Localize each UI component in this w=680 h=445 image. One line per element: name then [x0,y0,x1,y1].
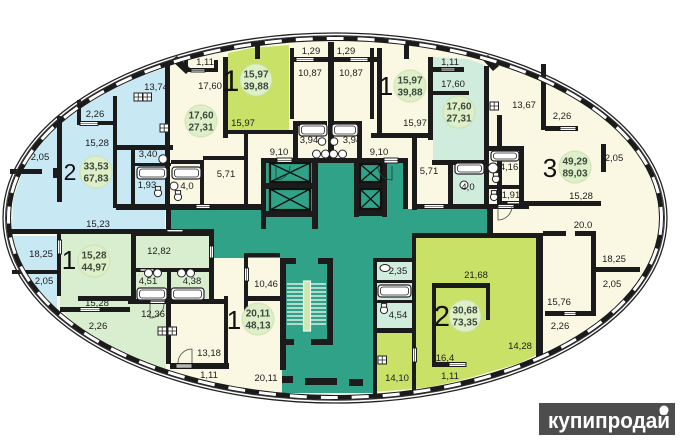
svg-text:20.0: 20.0 [574,220,593,231]
svg-text:2,26: 2,26 [551,321,570,332]
svg-text:9,10: 9,10 [370,147,389,158]
svg-text:39,88: 39,88 [397,88,422,99]
svg-text:15,28: 15,28 [85,138,109,149]
svg-text:17,60: 17,60 [441,79,465,90]
svg-text:1,11: 1,11 [441,371,459,382]
svg-text:15,28: 15,28 [569,191,593,202]
svg-text:21,68: 21,68 [464,270,488,281]
svg-text:15,23: 15,23 [86,219,110,230]
svg-text:13,18: 13,18 [197,348,221,359]
svg-text:33,53: 33,53 [83,162,108,173]
svg-text:14,28: 14,28 [508,341,532,352]
svg-text:14,10: 14,10 [385,373,409,384]
svg-text:17,60: 17,60 [446,102,471,113]
svg-text:17,60: 17,60 [188,111,213,122]
svg-text:1,11: 1,11 [196,57,214,68]
svg-text:4,0: 4,0 [180,181,193,192]
svg-text:20,11: 20,11 [254,373,277,384]
svg-text:3,94: 3,94 [300,135,319,146]
svg-text:44,97: 44,97 [81,263,106,274]
svg-text:18,25: 18,25 [602,254,626,265]
svg-text:1,91: 1,91 [502,190,521,201]
svg-text:2,26: 2,26 [89,321,108,332]
svg-text:12,82: 12,82 [147,246,171,257]
svg-text:2,26: 2,26 [553,111,572,122]
svg-text:13,74: 13,74 [144,82,168,93]
svg-text:89,03: 89,03 [562,169,587,180]
svg-text:1,29: 1,29 [337,46,356,57]
svg-text:2,05: 2,05 [603,279,622,290]
svg-text:1,29: 1,29 [302,46,321,57]
svg-text:купипродай: купипродай [548,408,670,433]
svg-text:1,11: 1,11 [200,370,218,381]
svg-text:3,94: 3,94 [343,135,362,146]
svg-text:4,38: 4,38 [183,276,202,287]
svg-text:15,28: 15,28 [81,251,106,262]
svg-text:27,31: 27,31 [188,123,213,134]
svg-text:15,97: 15,97 [243,70,268,81]
svg-text:67,83: 67,83 [83,174,108,185]
svg-text:4,16: 4,16 [500,162,519,173]
svg-text:10,46: 10,46 [254,279,278,290]
svg-text:15,97: 15,97 [397,76,422,87]
svg-text:1: 1 [227,305,241,335]
svg-text:15,97: 15,97 [231,118,255,129]
svg-text:49,29: 49,29 [562,157,587,168]
svg-text:1,93: 1,93 [138,180,157,191]
svg-text:2,35: 2,35 [389,266,408,277]
svg-text:9,10: 9,10 [270,147,289,158]
svg-text:13,67: 13,67 [512,100,536,111]
svg-text:17,60: 17,60 [198,81,222,92]
svg-text:2,05: 2,05 [605,153,624,164]
svg-text:30,68: 30,68 [452,306,477,317]
svg-text:39,88: 39,88 [243,82,268,93]
svg-text:10,87: 10,87 [298,68,322,79]
svg-text:1: 1 [379,71,393,101]
svg-text:4,54: 4,54 [389,310,408,321]
svg-text:18,25: 18,25 [29,249,53,260]
svg-text:4,0: 4,0 [461,182,474,193]
svg-text:15,76: 15,76 [547,297,571,308]
svg-text:73,35: 73,35 [452,318,477,329]
svg-text:2: 2 [64,159,77,185]
svg-text:27,31: 27,31 [446,114,471,125]
svg-text:1,11: 1,11 [441,57,459,68]
svg-text:2: 2 [434,301,450,333]
svg-text:48,13: 48,13 [245,321,270,332]
svg-text:15,28: 15,28 [85,298,109,309]
svg-text:1: 1 [223,65,240,98]
svg-text:10,87: 10,87 [339,68,363,79]
svg-text:3,40: 3,40 [139,149,158,160]
svg-text:3: 3 [543,153,557,183]
svg-text:1: 1 [62,245,76,275]
svg-text:5,71: 5,71 [420,166,439,177]
svg-text:12,36: 12,36 [141,309,165,320]
svg-text:15,97: 15,97 [403,118,427,129]
svg-text:2,05: 2,05 [31,152,50,163]
svg-text:5,71: 5,71 [217,169,236,180]
svg-text:20,11: 20,11 [246,309,271,320]
svg-text:2,26: 2,26 [86,109,105,120]
svg-text:2,05: 2,05 [35,276,54,287]
svg-text:16,4: 16,4 [436,353,455,364]
svg-text:4,51: 4,51 [139,276,158,287]
